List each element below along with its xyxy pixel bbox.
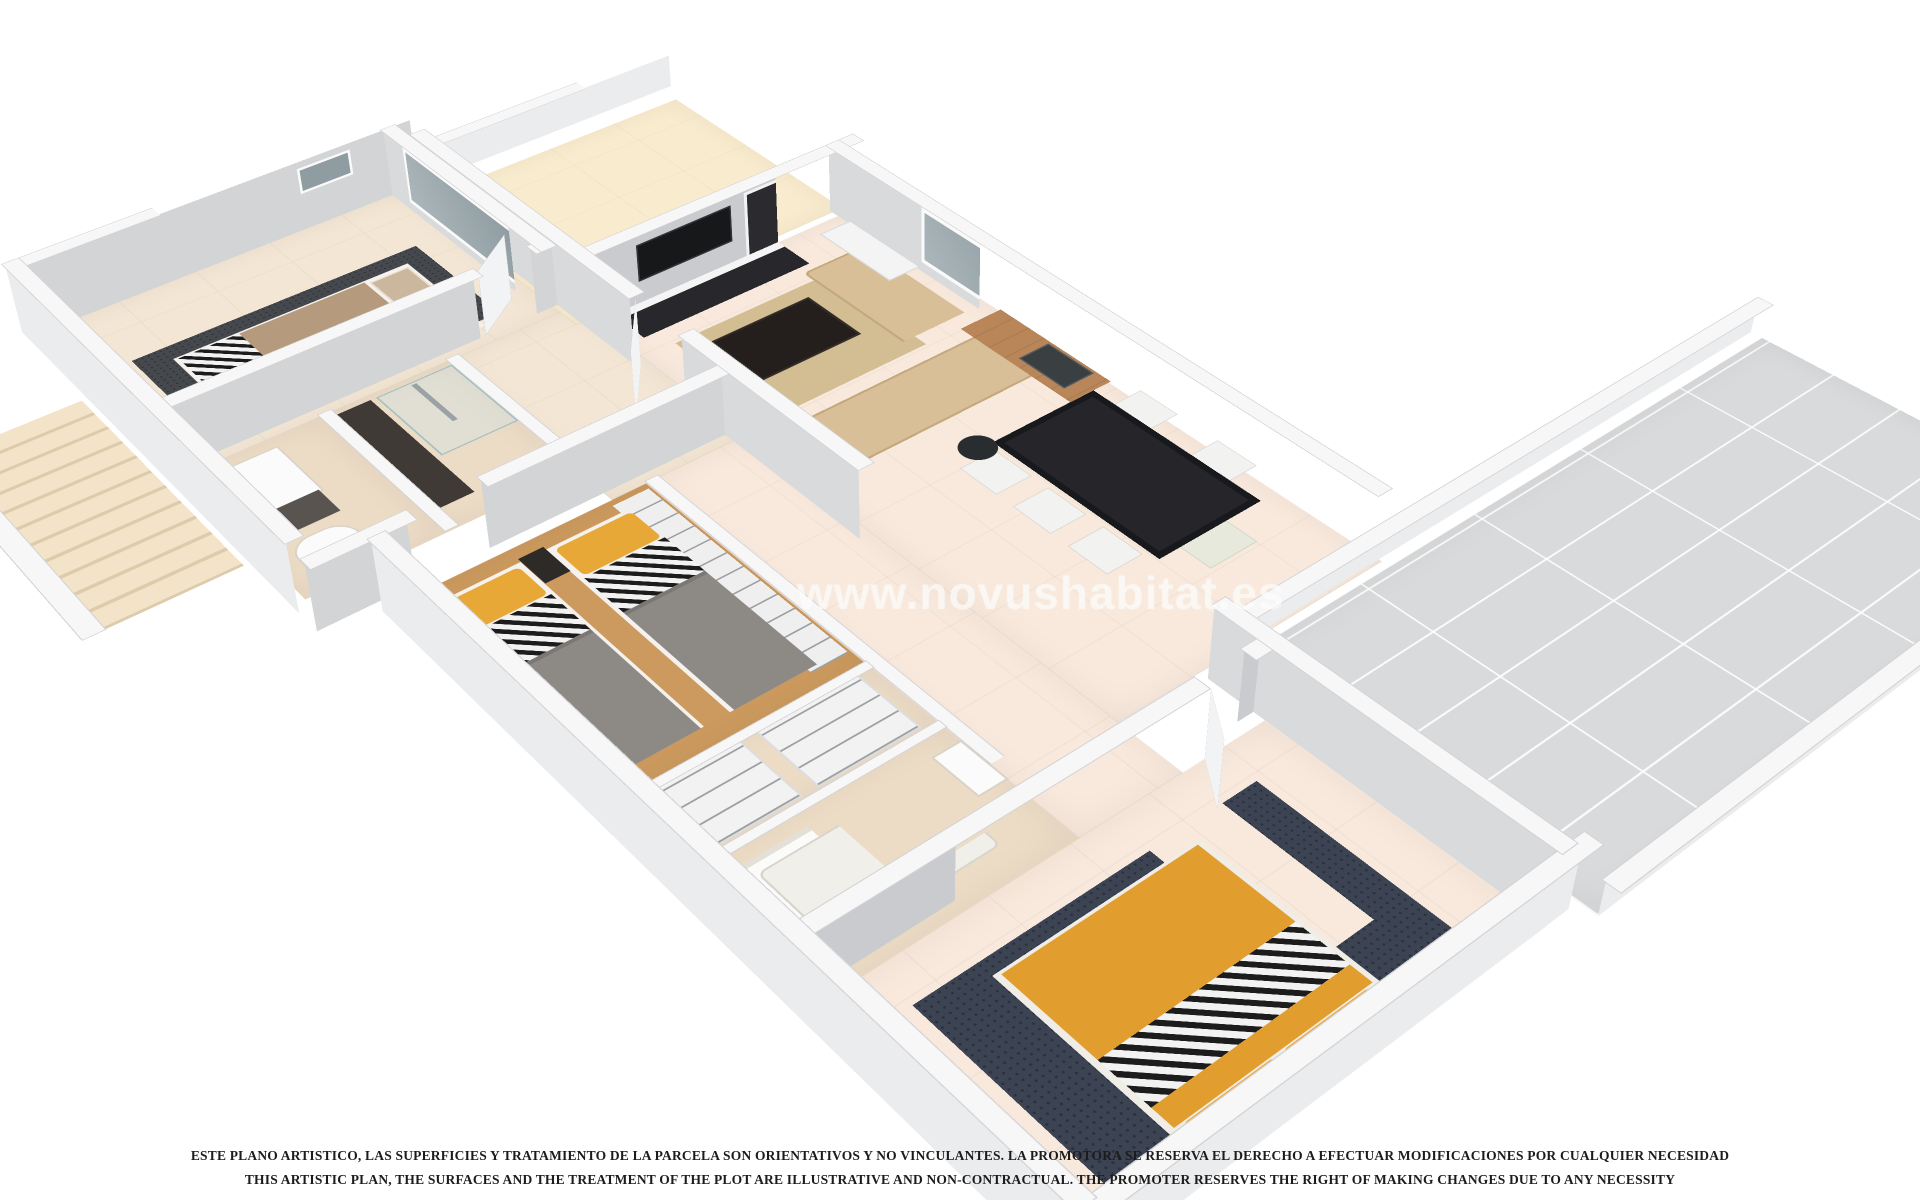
disclaimer-line-spanish: ESTE PLANO ARTISTICO, LAS SUPERFICIES Y … (0, 1148, 1920, 1164)
disclaimer-line-english: THIS ARTISTIC PLAN, THE SURFACES AND THE… (0, 1172, 1920, 1188)
floorplan-render-page: www.novushabitat.es ESTE PLANO ARTISTICO… (0, 0, 1920, 1200)
watermark-text: www.novushabitat.es (797, 566, 1285, 620)
